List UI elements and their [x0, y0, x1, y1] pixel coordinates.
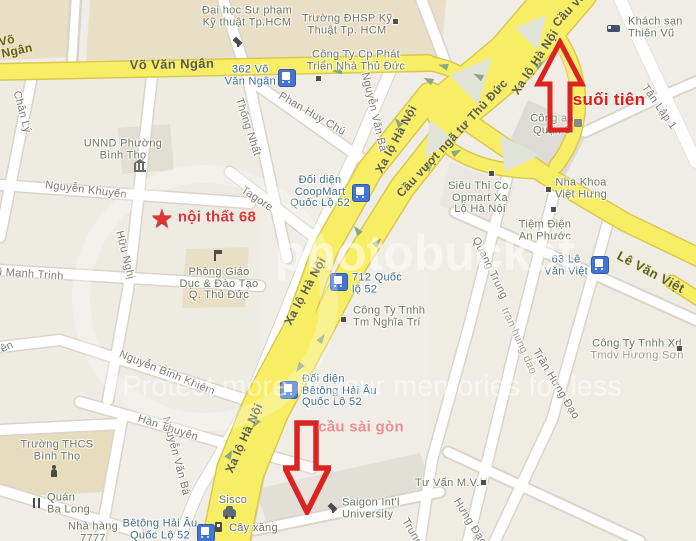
poi-khach-san-thien-vu: Khách sạn Thiên Vũ	[628, 17, 683, 40]
poi-cong-ty-cp-phat-trien: Công Ty Cp Phát Triển Nhà Thủ Đức	[307, 50, 406, 73]
poi-truong-dhsp: Trường ĐHSP Kỹ Thuật Tp. HCM	[302, 14, 392, 37]
poi-marker-icon	[489, 171, 494, 176]
bus-stop-label-362-vo-van-ngan: 362 Võ Văn Ngân	[225, 65, 276, 88]
poi-sisco: Sisco	[219, 494, 247, 506]
restaurant-icon	[33, 498, 41, 508]
university-icon	[232, 37, 244, 47]
gas-station-icon	[215, 522, 222, 532]
annotation-suoi-tien: suối tiên	[573, 90, 646, 110]
poi-cong-ty-huong-son: Công Ty Tnhh Xd Tmdv Hương Sơn	[590, 339, 683, 362]
poi-phong-giao-duc: Phòng Giáo Dục & Đào Tạo Q. Thủ Đức	[180, 267, 259, 302]
bus-stop-icon	[330, 273, 348, 291]
poi-marker-icon	[341, 317, 346, 322]
bus-stop-label-63-le-van-viet: 63 Lê Văn Việt	[544, 255, 588, 278]
poi-marker-icon	[316, 76, 321, 81]
bus-stop-label-betong-hai-au: Đối diện Bêtông Hải Âu Quốc Lộ 52	[302, 374, 377, 409]
annotation-cau-sai-gon: cầu sài gòn	[318, 419, 404, 436]
red-arrow-up-icon	[531, 38, 589, 134]
poi-cong-ty-nghia-tri: Công Ty Tnhh Tm Nghĩa Trí	[353, 306, 425, 329]
school-icon	[49, 465, 59, 478]
map-screenshot: Võ Văn Ngân Võ Ngân Xa lộ Hà Nội Xa lộ H…	[0, 0, 696, 541]
bus-stop-icon	[352, 184, 370, 202]
poi-marker-icon	[546, 187, 551, 192]
poi-marker-icon	[393, 19, 398, 24]
poi-nha-hang-7777: Nhà hàng 7777	[68, 522, 118, 541]
poi-tiem-dien-an-phuoc: Tiệm Điện An Phước	[519, 220, 571, 243]
flag-icon	[214, 250, 216, 261]
bus-stop-label-coopmart: Đối diện CoopMart Quốc Lộ 52	[290, 175, 350, 210]
bus-stop-label-betong-hai-au-2: Bêtông Hải Âu Quốc Lộ 52	[123, 519, 198, 541]
bus-stop-icon	[280, 381, 298, 399]
poi-unnd-phuong-binh-tho: UNND Phường Bình Thọ	[84, 139, 162, 162]
bus-stop-icon	[591, 256, 609, 274]
poi-tu-van-mvh: Tư Vấn M.V.H	[415, 477, 488, 489]
poi-cay-xang: Cây xăng	[229, 522, 278, 534]
car-icon	[223, 509, 236, 517]
bus-stop-icon	[278, 69, 296, 87]
poi-marker-icon	[481, 480, 486, 485]
bus-stop-label-712-quoc-lo-52: 712 Quốc lộ 52	[352, 273, 402, 296]
bus-stop-icon	[197, 524, 215, 541]
poi-nha-khoa-viet-hung: Nha Khoa Việt Hưng	[555, 178, 607, 201]
poi-saigon-intl-university: Saigon Int'l University	[342, 498, 400, 521]
poi-sieu-thi-coopmart: Siêu Thị Co. Opmart Xa Lộ Hà Nội	[448, 181, 512, 216]
poi-quan-ba-long: Quán Ba Long	[47, 493, 90, 516]
poi-marker-icon	[551, 207, 556, 212]
red-star-icon: ★	[150, 205, 174, 231]
government-building-icon	[134, 163, 146, 172]
poi-dai-hoc-su-pham: Đại học Sư phạm Kỹ thuật Tp.HCM	[202, 6, 292, 29]
annotation-noi-that-68: nội thất 68	[178, 209, 256, 226]
road-label-vo-van-ngan: Võ Văn Ngân	[130, 56, 215, 72]
poi-marker-icon	[677, 346, 682, 351]
poi-truong-thcs-binh-tho: Trường THCS Bình Thọ	[21, 440, 94, 463]
hotel-bed-icon	[607, 25, 620, 32]
